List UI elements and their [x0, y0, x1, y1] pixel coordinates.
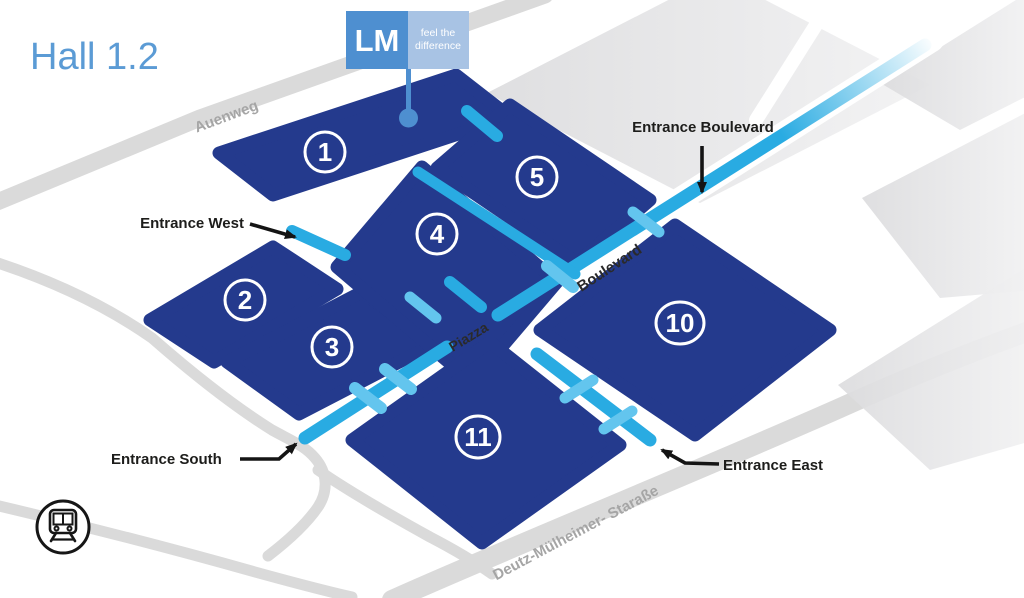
- hall-2-number: 2: [238, 285, 252, 315]
- entrance-south-label: Entrance South: [111, 451, 222, 468]
- lm-pin-stem: [406, 68, 411, 112]
- lm-logo-tagline-1: feel the: [421, 27, 456, 39]
- entrance-west-label: Entrance West: [140, 215, 244, 232]
- hall-5-number: 5: [530, 162, 544, 192]
- page-title: Hall 1.2: [30, 36, 159, 78]
- hall-1-number: 1: [318, 137, 332, 167]
- entrance-west-path: [292, 231, 345, 255]
- train-station-icon: [37, 501, 89, 553]
- city-block: [838, 262, 1024, 470]
- hall-4-number: 4: [430, 219, 445, 249]
- venue-map: 1 2 3 4 5 10 11 Auenweg Deutz-Mülheimer-…: [0, 0, 1024, 598]
- hall-10-number: 10: [666, 308, 695, 338]
- entrance-south-arrow: [240, 444, 296, 459]
- lm-logo-tagline-2: difference: [415, 40, 461, 52]
- hall-3-number: 3: [325, 332, 339, 362]
- hall-map-page: 1 2 3 4 5 10 11 Auenweg Deutz-Mülheimer-…: [0, 0, 1024, 598]
- city-block: [862, 108, 1024, 298]
- lm-logo-abbr: LM: [355, 23, 400, 58]
- entrance-boulevard-label: Entrance Boulevard: [632, 119, 774, 136]
- lm-location-pin: [399, 109, 418, 128]
- entrance-east-label: Entrance East: [723, 457, 823, 474]
- hall-11-number: 11: [464, 422, 492, 452]
